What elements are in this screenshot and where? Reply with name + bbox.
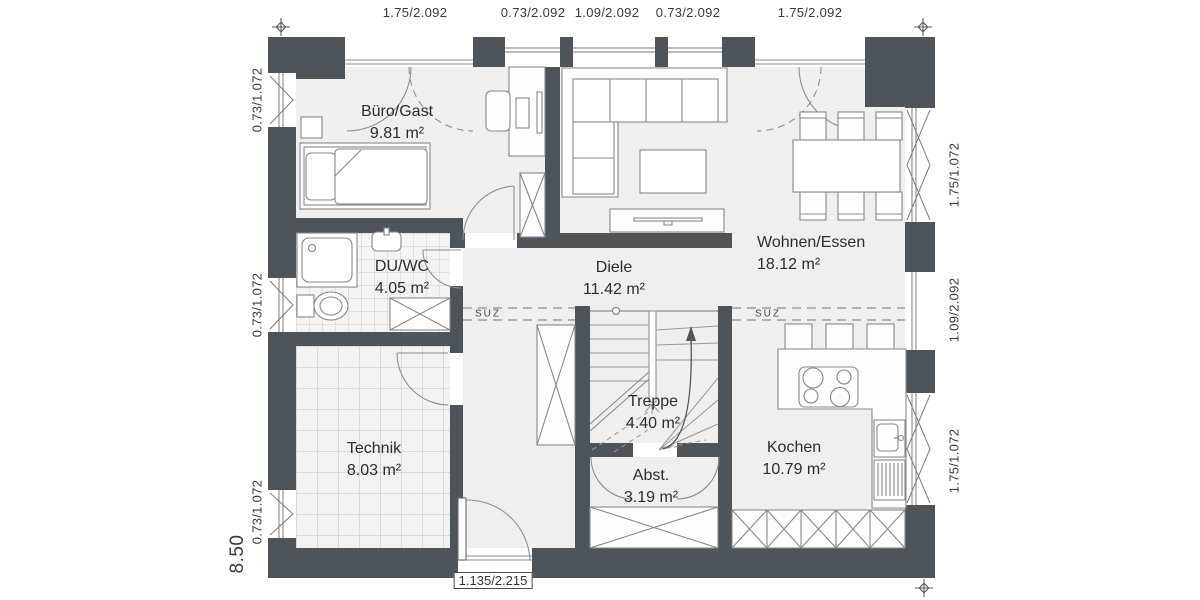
dining-table: [793, 140, 900, 192]
room-area: 8.03 m²: [347, 460, 401, 482]
wardrobe-buero: [520, 173, 545, 237]
dim-left-2: 0.73/1.072: [250, 273, 265, 337]
room-name: Abst.: [624, 465, 678, 487]
bed: [300, 143, 430, 209]
toilet: [297, 292, 348, 320]
dim-top-5: 1.75/2.092: [778, 5, 842, 20]
suz-label-left: SUZ: [475, 309, 501, 320]
dim-right-3: 1.75/1.072: [947, 429, 962, 493]
room-label-diele: Diele 11.42 m²: [583, 257, 645, 301]
shower: [297, 233, 357, 287]
bar-stools: [785, 324, 894, 349]
room-area: 11.42 m²: [583, 279, 645, 301]
room-label-abst: Abst. 3.19 m²: [624, 465, 678, 509]
room-label-wohnen: Wohnen/Essen 18.12 m²: [757, 232, 865, 276]
wall-shelf: [301, 117, 322, 138]
room-area: 10.79 m²: [762, 459, 825, 481]
room-area: 4.05 m²: [375, 278, 429, 300]
dim-top-1: 1.75/2.092: [383, 5, 447, 20]
dim-top-3: 1.09/2.092: [575, 5, 639, 20]
hall-wardrobe: [537, 325, 575, 445]
room-area: 18.12 m²: [757, 254, 865, 276]
room-label-duwc: DU/WC 4.05 m²: [375, 256, 429, 300]
desk-monitor: [537, 92, 542, 133]
room-label-kochen: Kochen 10.79 m²: [762, 437, 825, 481]
dim-left-1: 0.73/1.072: [250, 68, 265, 132]
tv-board: [610, 209, 724, 232]
floor-plan-page: Büro/Gast 9.81 m² DU/WC 4.05 m² Diele 11…: [0, 0, 1200, 600]
room-name: Technik: [347, 438, 401, 460]
room-name: Kochen: [762, 437, 825, 459]
room-label-treppe: Treppe 4.40 m²: [626, 391, 680, 435]
room-area: 9.81 m²: [361, 123, 433, 145]
abst-wardrobe: [590, 507, 718, 548]
room-name: DU/WC: [375, 256, 429, 278]
dim-top-2: 0.73/2.092: [501, 5, 565, 20]
coffee-table: [640, 150, 706, 193]
room-name: Büro/Gast: [361, 101, 433, 123]
survey-marker-bottom-right: [915, 579, 933, 597]
dim-left-3: 0.73/1.072: [250, 480, 265, 544]
survey-marker-top-left: [272, 18, 290, 36]
dim-building-width: 8.50: [227, 535, 249, 574]
room-label-buero: Büro/Gast 9.81 m²: [361, 101, 433, 145]
desk-chair: [486, 91, 510, 131]
room-name: Wohnen/Essen: [757, 232, 865, 254]
room-area: 4.40 m²: [626, 413, 680, 435]
room-name: Diele: [583, 257, 645, 279]
desk-keyboard: [516, 98, 529, 128]
survey-marker-top-right: [914, 18, 932, 36]
dim-top-4: 0.73/2.092: [656, 5, 720, 20]
dim-right-2: 1.09/2.092: [947, 278, 962, 342]
room-area: 3.19 m²: [624, 487, 678, 509]
bath-cabinet: [390, 298, 450, 330]
suz-label-right: SUZ: [755, 309, 781, 320]
dim-entrance-door: 1.135/2.215: [454, 572, 533, 589]
kitchen-counter: [732, 510, 905, 548]
room-name: Treppe: [626, 391, 680, 413]
room-label-technik: Technik 8.03 m²: [347, 438, 401, 482]
dim-right-1: 1.75/1.072: [947, 143, 962, 207]
